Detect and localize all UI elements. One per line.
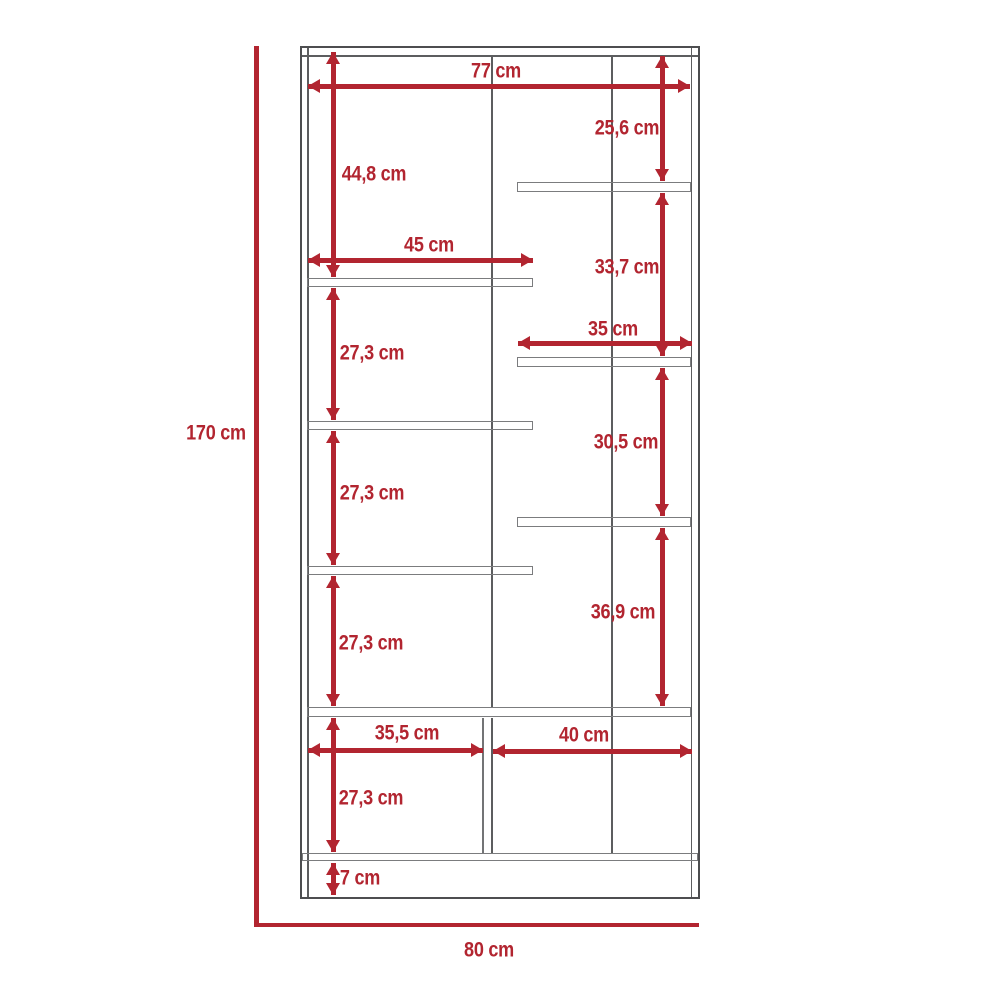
shelf-left-1 [307,278,533,287]
dim-arrow-left-gap-1 [331,288,336,420]
dim-label-right-gap-2: 30,5 cm [594,432,658,453]
dim-arrow-top-width [308,84,690,89]
shelf-right-3 [517,517,691,527]
dim-label-right-shelf-width: 35 cm [588,319,638,340]
dim-label-bottom-left-height: 27,3 cm [339,788,403,809]
dim-label-total-height: 170 cm [186,423,246,444]
dim-label-left-gap-1: 27,3 cm [340,343,404,364]
dim-label-upper-right-height: 25,6 cm [595,118,659,139]
right-divider [611,56,613,853]
dim-arrow-right-gap-3 [660,528,665,706]
dim-arrow-left-gap-2 [331,431,336,565]
dim-label-upper-left-height: 44,8 cm [342,164,406,185]
shelf-left-3 [307,566,533,575]
shelf-full-width [307,707,691,717]
right-panel-line [691,48,693,897]
dim-label-left-gap-2: 27,3 cm [340,483,404,504]
base-panel [302,853,698,861]
dim-label-total-width: 80 cm [464,940,514,961]
dim-label-left-gap-3: 27,3 cm [339,633,403,654]
dim-label-top-width: 77 cm [471,61,521,82]
dim-label-bottom-right-width: 40 cm [559,725,609,746]
left-panel-line [307,48,309,897]
dim-label-right-gap-3: 36,9 cm [591,602,655,623]
dim-label-base-height: 7 cm [340,868,380,889]
overall-height-line [254,46,259,927]
center-divider [491,56,493,707]
dim-label-right-gap-1: 33,7 cm [595,257,659,278]
drawer-divider-left [482,718,484,853]
dim-arrow-right-gap-2 [660,368,665,516]
dim-label-bottom-left-width: 35,5 cm [375,723,439,744]
dimension-diagram: 170 cm 80 cm 77 cm 25,6 cm 44,8 cm 45 cm… [0,0,1000,1000]
overall-width-line [254,923,699,928]
dim-arrow-right-gap-1 [660,193,665,356]
shelf-right-2 [517,357,691,367]
dim-label-left-shelf-width: 45 cm [404,235,454,256]
shelf-right-1 [517,182,691,192]
dim-arrow-bottom-right-width [493,749,692,754]
drawer-divider-right [491,718,493,853]
dim-arrow-upper-right-height [660,56,665,181]
dim-arrow-left-gap-3 [331,576,336,706]
dim-arrow-bottom-left-height [331,718,336,852]
shelf-left-2 [307,421,533,430]
dim-arrow-base-height [331,863,336,895]
dim-arrow-left-shelf-width [308,258,533,263]
top-panel-line [302,55,698,57]
dim-arrow-upper-left-height [331,52,336,277]
